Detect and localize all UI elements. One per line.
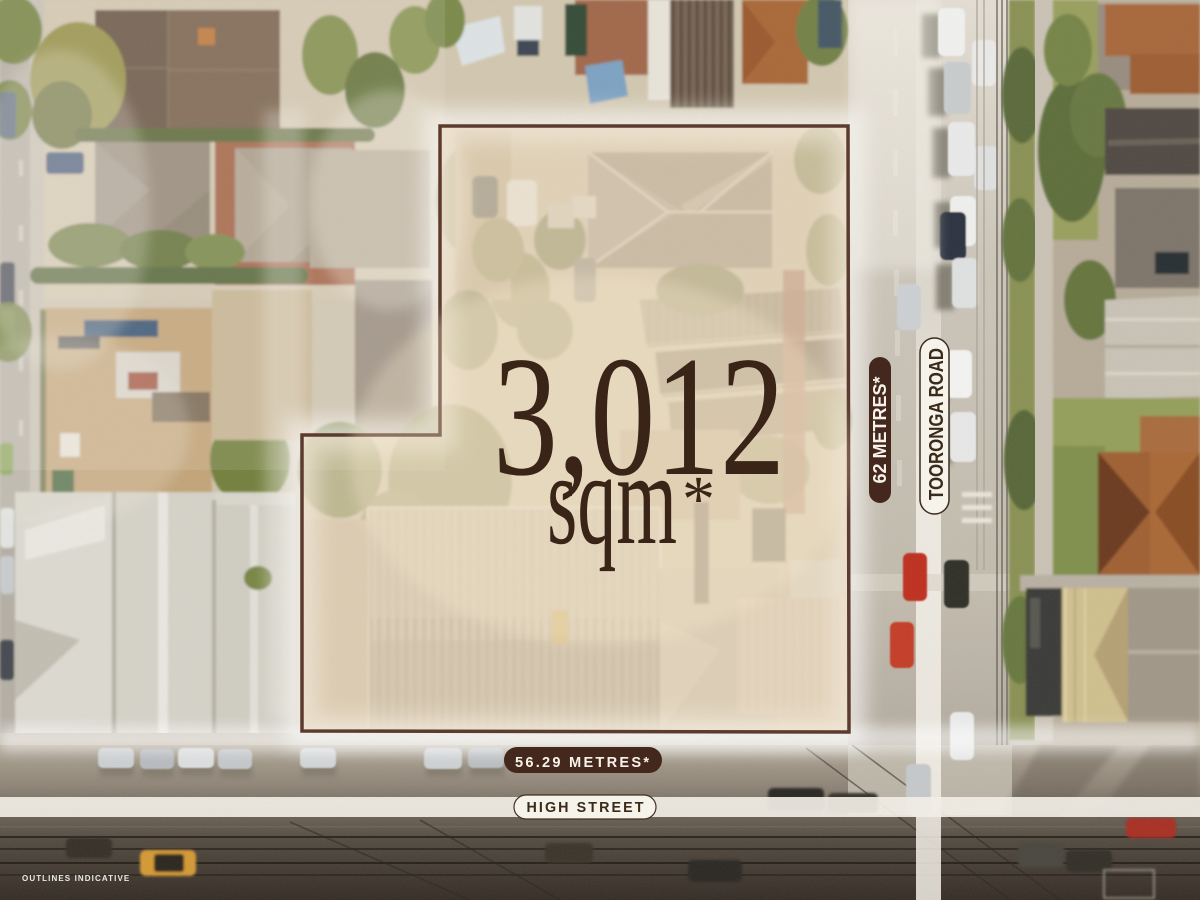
svg-text:sqm: sqm: [547, 425, 677, 572]
svg-text:62 METRES*: 62 METRES*: [869, 376, 890, 484]
svg-text:TOORONGA ROAD: TOORONGA ROAD: [925, 348, 948, 500]
svg-text:HIGH STREET: HIGH STREET: [527, 800, 644, 816]
svg-text:OUTLINES INDICATIVE: OUTLINES INDICATIVE: [22, 874, 130, 883]
svg-text:*: *: [682, 463, 715, 536]
